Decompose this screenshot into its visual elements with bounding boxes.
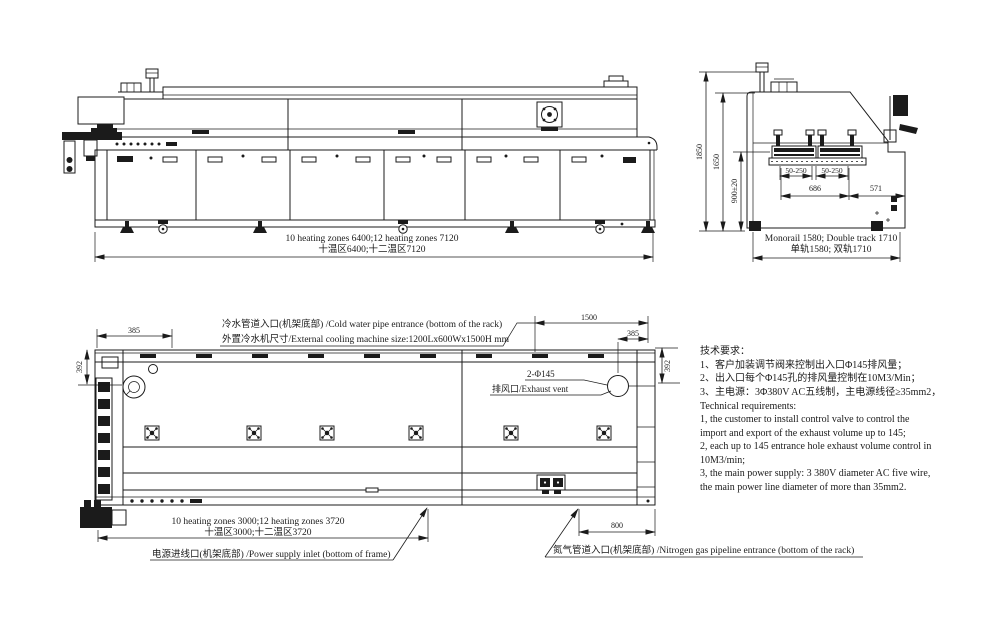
- dim-rail-range-right: 50-250: [821, 166, 842, 175]
- track-dim-en: Monorail 1580; Double track 1710: [765, 234, 898, 244]
- side-zones-dim-cn: 十温区6400;十二温区7120: [318, 243, 425, 255]
- dim-686-label: 686: [809, 184, 821, 193]
- tech-line: 技术要求：: [700, 344, 750, 357]
- monitor-lever-icon: [899, 124, 918, 134]
- plan-control-box: [537, 475, 565, 494]
- tech-line: the main power line diameter of more tha…: [700, 482, 906, 493]
- tech-line: 2、出入口每个Φ145孔的排风量控制在10M3/Min；: [700, 371, 921, 384]
- side-hood-fan-icon: [537, 102, 562, 131]
- plan-zone-dimension: 10 heating zones 3000;12 heating zones 3…: [98, 509, 428, 542]
- cold-water-label: 冷水管道入口(机架底部) /Cold water pipe entrance (…: [222, 318, 502, 330]
- side-hood: [110, 87, 637, 150]
- tech-line: import and export of the exhaust volume …: [700, 428, 906, 439]
- nitrogen-label: 氮气管道入口(机架底部) /Nitrogen gas pipeline entr…: [553, 544, 854, 556]
- dim-800-label: 800: [611, 521, 623, 530]
- plan-zones-dim-cn: 十温区3000;十二温区3720: [204, 526, 311, 538]
- end-track-dimension: Monorail 1580; Double track 1710 单轨1580;…: [753, 232, 900, 262]
- dim-1850-label: 1850: [695, 144, 704, 160]
- keyboard-tray: [62, 132, 122, 140]
- exhaust-count-label: 2-Φ145: [527, 369, 555, 379]
- engineering-drawing-canvas: 10 heating zones 6400;12 heating zones 7…: [0, 0, 1000, 641]
- dim-1650-label: 1650: [712, 154, 721, 170]
- dim-392-right-label: 392: [663, 360, 672, 372]
- end-conveyor-rails: [769, 130, 866, 165]
- side-monitor-arm: [62, 97, 124, 173]
- side-signal-lamp-icon: [118, 69, 163, 92]
- plan-dim-800: 800: [579, 509, 655, 536]
- tech-line: 3, the main power supply: 3 380V diamete…: [700, 468, 930, 479]
- side-base: [95, 220, 655, 233]
- power-inlet-box: [80, 500, 126, 528]
- plan-body: [95, 350, 655, 505]
- plan-fans: [145, 426, 611, 440]
- side-zones-dim-en: 10 heating zones 6400;12 heating zones 7…: [285, 234, 458, 244]
- dim-rail-height-label: 900±20: [730, 179, 739, 203]
- exhaust-vent-label: 排风口/Exhaust vent: [492, 383, 569, 394]
- tech-line: 2, each up to 145 entrance hole exhaust …: [700, 441, 931, 452]
- control-monitor-icon: [78, 97, 124, 124]
- end-top-box: [771, 79, 797, 92]
- dim-rail-range-left: 50-250: [785, 166, 806, 175]
- side-top-cap: [604, 76, 628, 87]
- plan-top-labels: 冷水管道入口(机架底部) /Cold water pipe entrance (…: [220, 318, 535, 346]
- tech-line: 3、主电源：3Φ380V AC五线制，主电源线径≥35mm2，: [700, 385, 941, 398]
- dim-571-label: 571: [870, 184, 882, 193]
- tech-requirements-note: 技术要求： 1、客户加装调节阀来控制出入口Φ145排风量； 2、出入口每个Φ14…: [700, 344, 941, 493]
- end-elevation-view: 1850 1650 900±20 50-250 50-250 686 571 M: [695, 63, 918, 262]
- tech-line: Technical requirements:: [700, 401, 796, 412]
- end-monitor-icon: [884, 95, 918, 142]
- dim-1500-label: 1500: [581, 313, 597, 322]
- tech-line: 1, the customer to install control valve…: [700, 414, 910, 425]
- side-cabinet: [95, 150, 654, 220]
- monitor-hinge: [97, 124, 113, 128]
- dim-385-right-label: 385: [627, 329, 639, 338]
- dim-385-left-label: 385: [128, 326, 140, 335]
- side-elevation-view: 10 heating zones 6400;12 heating zones 7…: [62, 69, 657, 262]
- dim-392-left-label: 392: [75, 361, 84, 373]
- exhaust-vent-circle: [608, 376, 656, 397]
- plan-zones-dim-en: 10 heating zones 3000;12 heating zones 3…: [171, 517, 344, 527]
- cooling-size-label: 外置冷水机尺寸/External cooling machine size:12…: [222, 333, 510, 345]
- power-supply-label: 电源进线口(机架底部) /Power supply inlet (bottom …: [152, 548, 391, 560]
- track-dim-cn: 单轨1580; 双轨1710: [790, 243, 871, 255]
- side-length-dimension: 10 heating zones 6400;12 heating zones 7…: [95, 232, 653, 262]
- end-height-dimensions: 1850 1650 900±20: [695, 72, 770, 231]
- end-rail-dimensions: 50-250 50-250 686 571: [780, 156, 905, 200]
- tech-line: 1、客户加装调节阀来控制出入口Φ145排风量；: [700, 358, 907, 371]
- end-outline: [747, 92, 905, 228]
- plan-dim-392-right: 392: [655, 348, 680, 383]
- exhaust-vent-callout: 2-Φ145 排风口/Exhaust vent: [490, 369, 611, 395]
- end-signal-lamp-icon: [756, 63, 768, 92]
- end-feet: [749, 221, 883, 231]
- plan-dim-385-left: 385: [97, 326, 172, 348]
- side-conveyor-band: [95, 137, 657, 150]
- tech-line: 10M3/min;: [700, 455, 745, 466]
- cold-water-inlet-circle: [123, 365, 158, 399]
- plan-dim-385-right: 385: [618, 329, 648, 373]
- nitrogen-callout: 氮气管道入口(机架底部) /Nitrogen gas pipeline entr…: [545, 509, 863, 557]
